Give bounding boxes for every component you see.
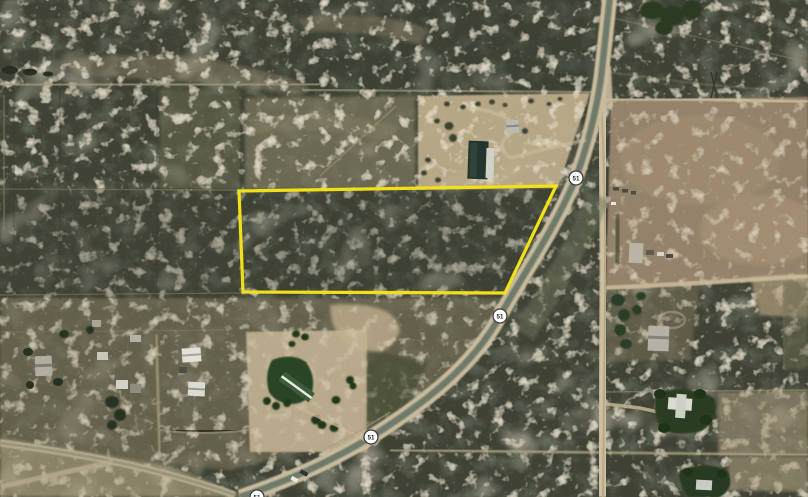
svg-text:51: 51 xyxy=(497,313,504,320)
svg-text:51: 51 xyxy=(573,175,580,182)
svg-text:51: 51 xyxy=(368,434,375,441)
